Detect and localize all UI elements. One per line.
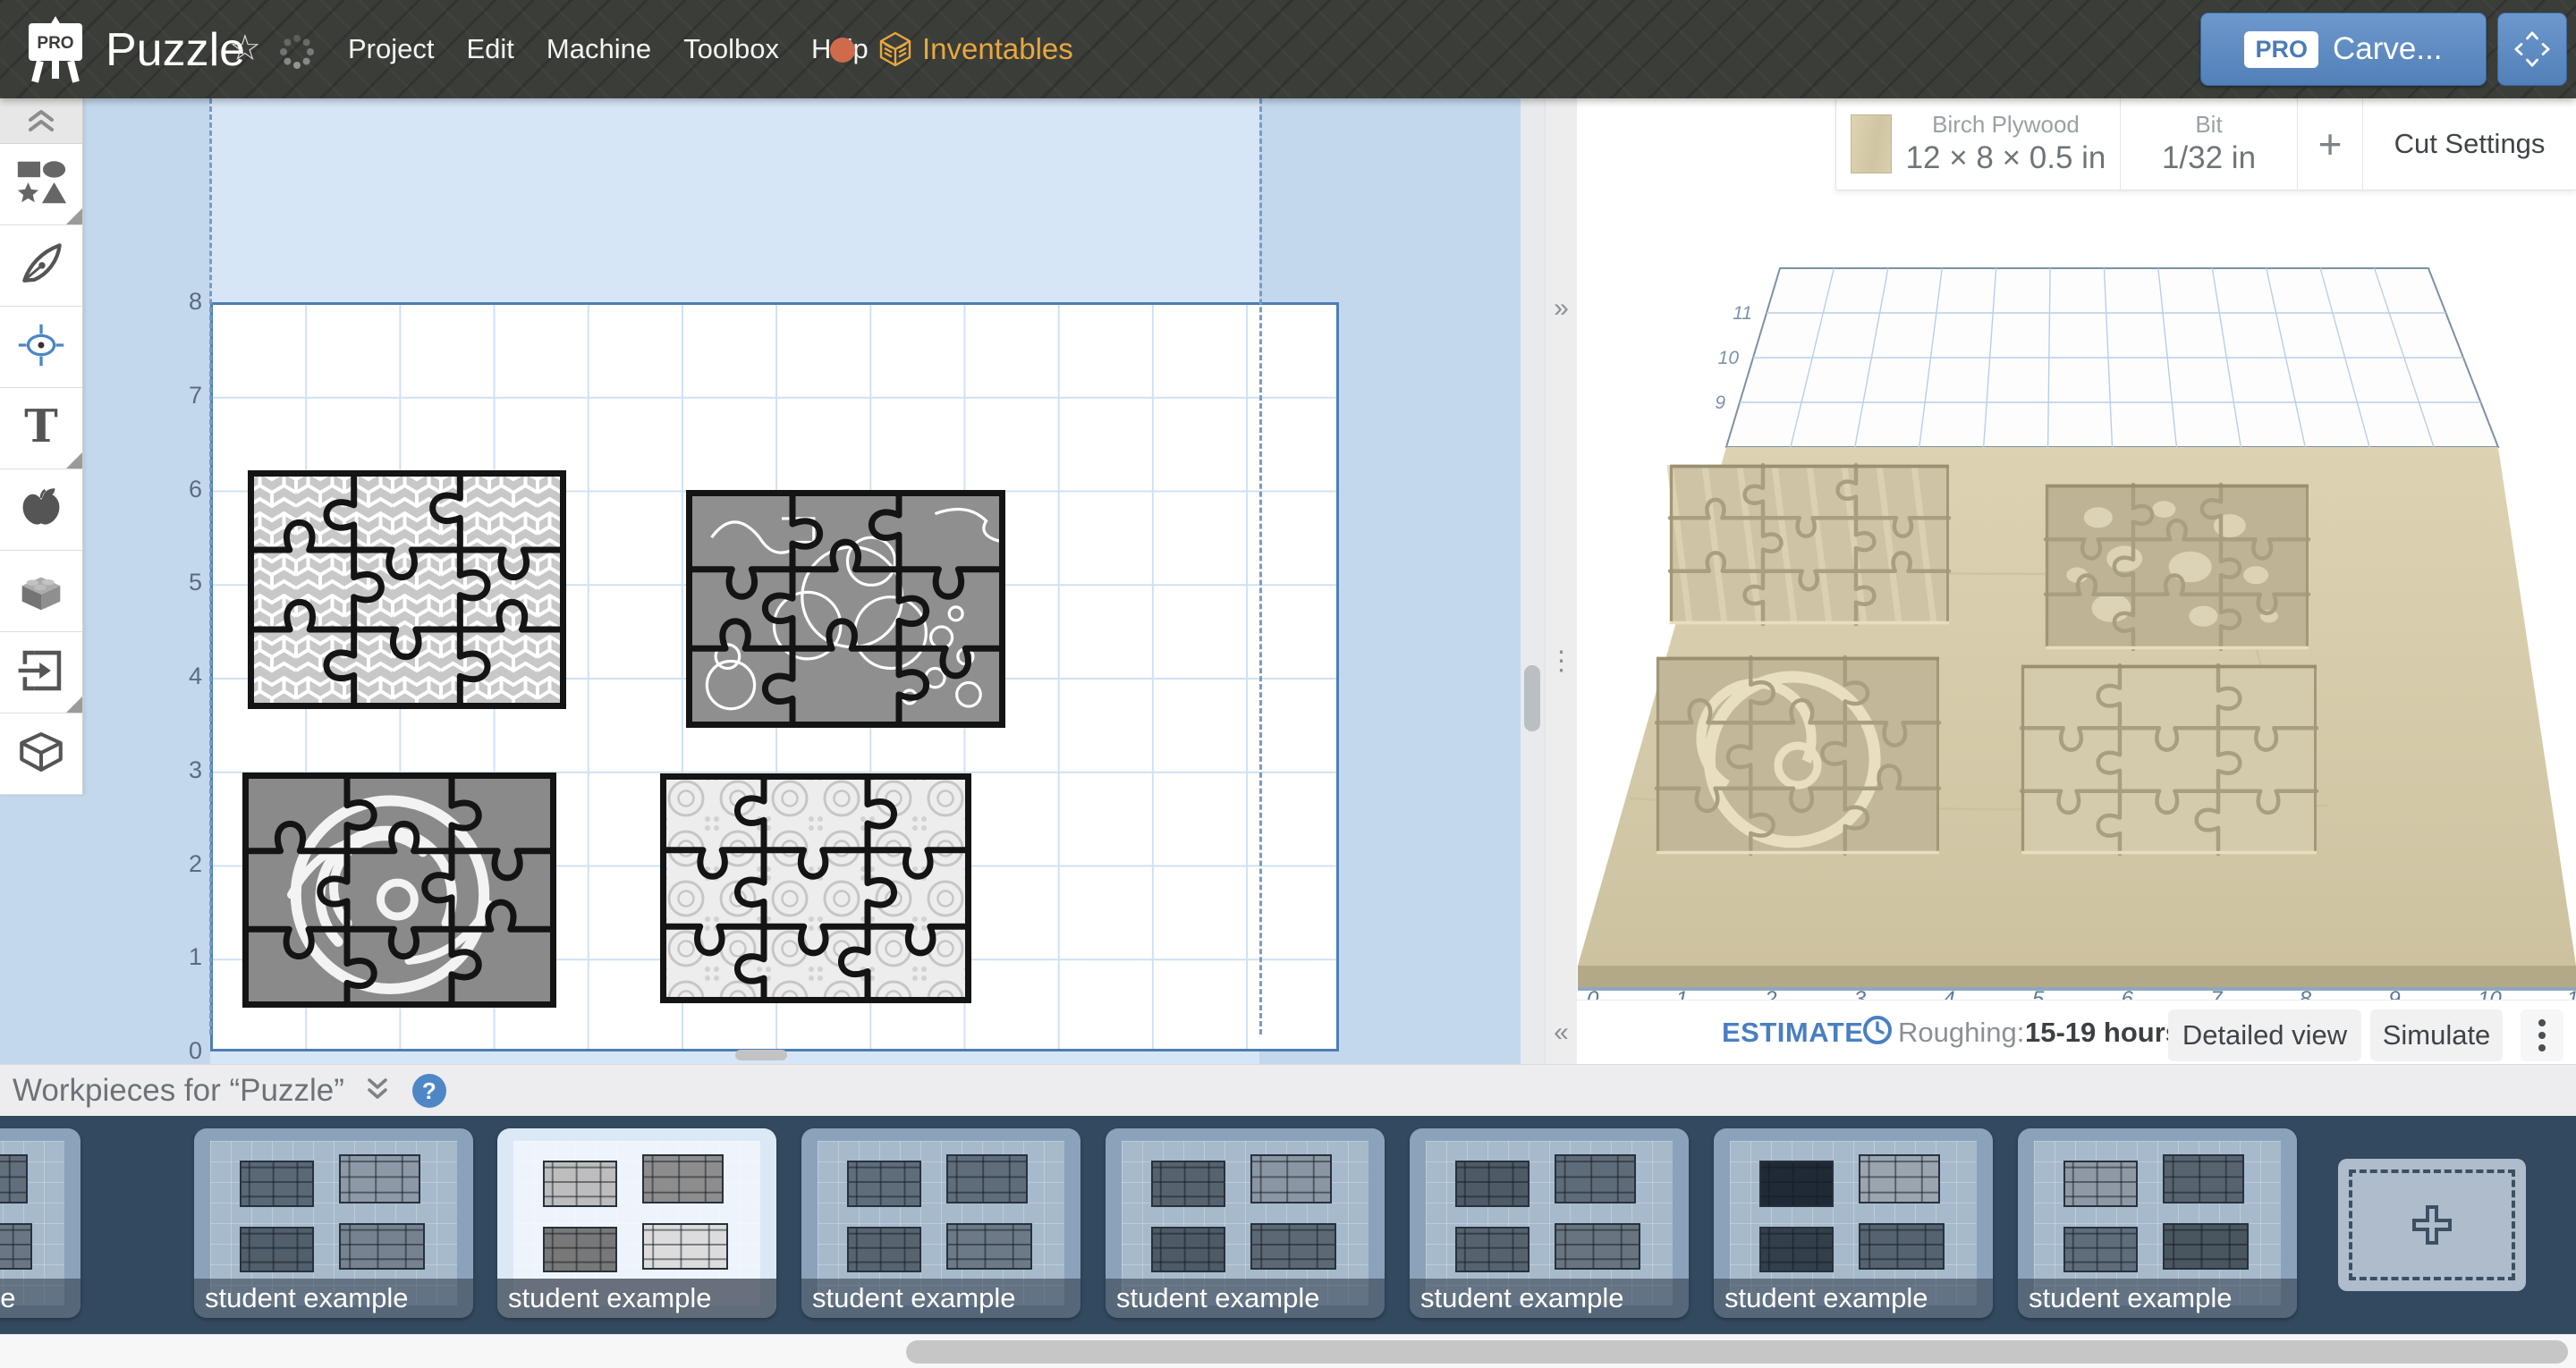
toolbar-text-button[interactable]: T: [0, 388, 82, 469]
estimate-bar: ESTIMATE Roughing: 15-19 hours Detailed …: [1576, 1000, 2576, 1065]
mini-puzzle: [1555, 1223, 1641, 1270]
drag-handle-icon[interactable]: ⋮: [1546, 654, 1577, 668]
mini-puzzle: [946, 1223, 1033, 1270]
svg-text:5: 5: [2032, 987, 2045, 1000]
svg-text:PRO: PRO: [37, 34, 73, 53]
main-menu: ProjectEditMachineToolboxHelp: [348, 0, 869, 98]
workpieces-header: Workpieces for “Puzzle” ?: [0, 1064, 2576, 1117]
add-bit-button[interactable]: +: [2298, 98, 2363, 190]
mini-puzzle: [2063, 1161, 2138, 1207]
toolbar-apple-button[interactable]: [0, 469, 82, 551]
y-axis-tick: 2: [163, 850, 202, 878]
apple-icon: [15, 482, 67, 538]
workpiece-thumbnail[interactable]: student example: [194, 1128, 473, 1318]
toolbar-pen-button[interactable]: [0, 225, 82, 307]
mini-puzzle: [240, 1227, 314, 1273]
toolbar-import-button[interactable]: [0, 632, 82, 714]
design-toolbar: T: [0, 98, 83, 795]
mini-puzzle: [1250, 1154, 1332, 1203]
mini-puzzle: [642, 1223, 729, 1270]
collapse-right-icon[interactable]: »: [1546, 293, 1577, 324]
svg-text:2: 2: [1764, 987, 1776, 1000]
easel-app: PRO Puzzle ☆ ProjectEditMachineToolboxHe…: [0, 0, 2576, 1368]
mini-puzzle: [847, 1227, 921, 1273]
workpiece-thumbnail[interactable]: student example: [1714, 1128, 1993, 1318]
mini-puzzle: [2163, 1154, 2244, 1203]
detailed-view-button[interactable]: Detailed view: [2168, 1009, 2361, 1061]
mini-puzzle: [339, 1223, 426, 1270]
workpiece-label: student example: [1106, 1279, 1385, 1318]
workpiece-thumbnail[interactable]: student example: [0, 1128, 80, 1318]
mini-puzzle: [1759, 1161, 1834, 1207]
more-options-button[interactable]: [2521, 1009, 2563, 1061]
estimate-label: ESTIMATE: [1722, 1017, 1863, 1049]
workpiece-label: student example: [1410, 1279, 1689, 1318]
y-axis-tick: 7: [163, 382, 202, 410]
ornate-tiles-puzzle[interactable]: [660, 773, 971, 1003]
geometric-pattern-puzzle[interactable]: [248, 470, 566, 709]
toolbar-shapes-button[interactable]: [0, 144, 82, 225]
bit-value: 1/32 in: [2162, 139, 2256, 178]
collapse-tray-button[interactable]: [362, 1074, 393, 1109]
workpiece-label: student example: [1714, 1279, 1993, 1318]
mini-puzzle: [642, 1154, 724, 1203]
preview-panel: Birch Plywood 12 × 8 × 0.5 in Bit 1/32 i…: [1576, 98, 2576, 1064]
toolbar-crosshair-button[interactable]: [0, 307, 82, 388]
svg-text:11: 11: [1733, 303, 1752, 324]
svg-text:10: 10: [1718, 348, 1740, 368]
workpiece-thumbnail-selected[interactable]: student example: [497, 1128, 776, 1318]
canvas-horizontal-scrollbar[interactable]: [0, 1044, 1521, 1064]
svg-text:0: 0: [1587, 987, 1599, 1000]
canvas-vertical-scrollbar-thumb[interactable]: [1524, 665, 1540, 731]
top-menu-bar: PRO Puzzle ☆ ProjectEditMachineToolboxHe…: [0, 0, 2576, 98]
shapes-icon: [13, 155, 69, 215]
mini-puzzle: [1859, 1154, 1940, 1203]
estimate-time: 15-19 hours: [2025, 1017, 2181, 1049]
simulate-button[interactable]: Simulate: [2370, 1009, 2503, 1061]
mini-puzzle: [543, 1227, 617, 1273]
menu-item-project[interactable]: Project: [348, 33, 434, 65]
mini-puzzle: [543, 1161, 617, 1207]
double-chevron-down-icon: [362, 1074, 393, 1104]
material-name: Birch Plywood: [1932, 110, 2080, 139]
workpiece-thumbnail[interactable]: student example: [1106, 1128, 1385, 1318]
toolbar-collapse-button[interactable]: [0, 98, 82, 144]
carve-pro-badge: PRO: [2244, 31, 2318, 68]
toolbar-cube-button[interactable]: [0, 714, 82, 795]
y-axis-tick: 4: [163, 663, 202, 690]
work-area-left-bound: [209, 98, 212, 1034]
material-dimensions: 12 × 8 × 0.5 in: [1906, 139, 2106, 178]
material-swatch: [1851, 114, 1892, 173]
bit-label: Bit: [2195, 110, 2222, 139]
mini-puzzle: [1455, 1227, 1529, 1273]
mini-puzzle: [1151, 1227, 1225, 1273]
workpiece-label: student example: [194, 1279, 473, 1318]
menu-item-edit[interactable]: Edit: [466, 33, 513, 65]
cube-icon: [15, 726, 67, 782]
easel-pro-logo-icon[interactable]: PRO: [23, 14, 88, 84]
svg-text:8: 8: [2300, 987, 2312, 1000]
workpiece-thumbnail[interactable]: student example: [1410, 1128, 1689, 1318]
carve-button[interactable]: PRO Carve...: [2200, 13, 2487, 86]
panel-gutter: [1521, 98, 1545, 1064]
material-selector[interactable]: Birch Plywood 12 × 8 × 0.5 in: [1836, 98, 2121, 190]
mini-puzzle: [0, 1154, 28, 1203]
add-workpiece-button[interactable]: [2338, 1159, 2526, 1291]
workpieces-tray: student examplestudent examplestudent ex…: [0, 1116, 2576, 1334]
mini-puzzle: [1250, 1223, 1337, 1270]
favorite-star-icon[interactable]: ☆: [229, 30, 261, 66]
cut-settings-button[interactable]: Cut Settings: [2363, 98, 2576, 190]
y-axis-tick: 6: [163, 476, 202, 503]
preview-3d-viewport[interactable]: 1110901234567891011: [1576, 190, 2576, 1000]
project-title[interactable]: Puzzle: [106, 23, 245, 77]
svg-text:4: 4: [1943, 987, 1954, 1000]
panel-divider[interactable]: » ⋮ «: [1545, 98, 1577, 1064]
fullscreen-expand-button[interactable]: [2497, 13, 2567, 86]
menu-item-machine[interactable]: Machine: [547, 33, 651, 65]
workpiece-label: student example: [801, 1279, 1080, 1318]
svg-text:10: 10: [2478, 987, 2502, 1000]
svg-text:6: 6: [2122, 987, 2134, 1000]
swirl-medallion-puzzle[interactable]: [242, 773, 556, 1008]
expand-arrows-icon: [2512, 30, 2552, 69]
sync-spinner-icon: [279, 34, 315, 70]
workpieces-title: Workpieces for “Puzzle”: [13, 1073, 344, 1109]
tray-scrollbar-thumb[interactable]: [906, 1340, 2568, 1364]
svg-text:7: 7: [2210, 987, 2224, 1000]
mini-puzzle: [1151, 1161, 1225, 1207]
svg-text:11: 11: [2567, 987, 2576, 1000]
lego-icon: [13, 562, 69, 621]
kebab-menu-icon: [2538, 1018, 2546, 1053]
corner-fold: [66, 452, 82, 469]
collapse-left-icon[interactable]: «: [1546, 1018, 1577, 1048]
bit-selector[interactable]: Bit 1/32 in: [2121, 98, 2298, 190]
estimate-stage: Roughing:: [1898, 1017, 2024, 1049]
double-chevron-up-icon: [23, 107, 59, 134]
import-icon: [15, 645, 67, 701]
mini-puzzle: [946, 1154, 1028, 1203]
plus-icon: [2407, 1200, 2457, 1250]
pen-icon: [14, 237, 68, 295]
mini-puzzle: [1555, 1154, 1636, 1203]
doodle-animals-puzzle[interactable]: [686, 490, 1005, 728]
y-axis-tick: 1: [163, 943, 202, 971]
material-bar: Birch Plywood 12 × 8 × 0.5 in Bit 1/32 i…: [1835, 98, 2576, 190]
mini-puzzle: [1759, 1227, 1834, 1273]
corner-fold: [66, 697, 82, 713]
crosshair-icon: [13, 317, 69, 377]
mini-puzzle: [0, 1223, 32, 1270]
mini-puzzle: [339, 1154, 420, 1203]
inventables-logo-icon: [879, 31, 911, 67]
corner-fold: [66, 208, 82, 224]
y-axis-tick: 8: [163, 288, 202, 316]
workpiece-label: student example: [0, 1279, 80, 1318]
text-icon: T: [14, 400, 68, 458]
toolbar-lego-button[interactable]: [0, 551, 82, 632]
menu-item-toolbox[interactable]: Toolbox: [683, 33, 779, 65]
svg-text:9: 9: [2388, 987, 2400, 1000]
mini-puzzle: [847, 1161, 921, 1207]
mini-puzzle: [2163, 1223, 2250, 1270]
clock-icon: [1862, 1015, 1893, 1050]
svg-text:9: 9: [1715, 393, 1725, 413]
mini-puzzle: [1455, 1161, 1529, 1207]
workpiece-thumbnail[interactable]: student example: [2018, 1128, 2297, 1318]
inventables-brand[interactable]: Inventables: [879, 0, 1073, 98]
svg-text:3: 3: [1854, 987, 1867, 1000]
mini-puzzle: [1859, 1223, 1945, 1270]
workpiece-label: student example: [2018, 1279, 2297, 1318]
inventables-label: Inventables: [922, 32, 1073, 66]
design-canvas[interactable]: 8765432100123456789101112 − + inch mm: [0, 98, 1521, 1064]
tray-scrollbar[interactable]: [0, 1334, 2576, 1368]
help-notification-dot: [830, 38, 855, 63]
y-axis-tick: 3: [163, 756, 202, 784]
workpiece-label: student example: [497, 1279, 776, 1318]
svg-text:T: T: [24, 400, 58, 452]
svg-text:1: 1: [1676, 987, 1688, 1000]
mini-puzzle: [2063, 1227, 2138, 1273]
work-area-right-bound: [1259, 98, 1262, 1034]
workpiece-thumbnail[interactable]: student example: [801, 1128, 1080, 1318]
canvas-hscroll-thumb[interactable]: [735, 1050, 787, 1060]
mini-puzzle: [240, 1161, 314, 1207]
y-axis-tick: 5: [163, 569, 202, 596]
help-icon[interactable]: ?: [412, 1074, 446, 1108]
